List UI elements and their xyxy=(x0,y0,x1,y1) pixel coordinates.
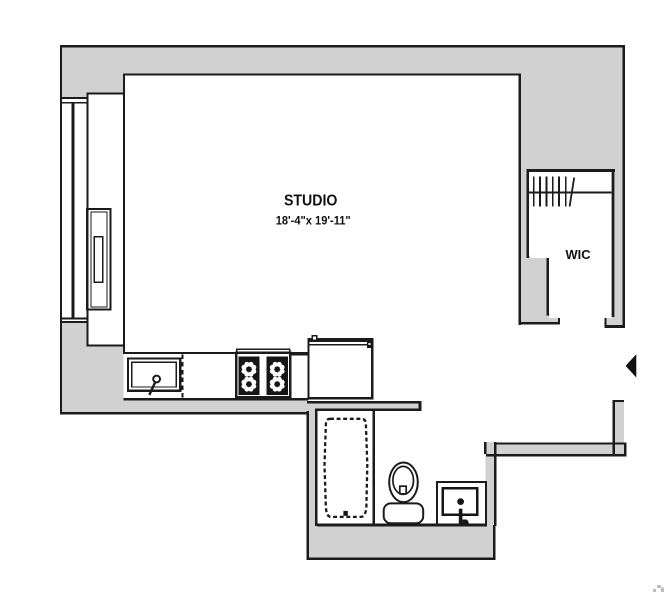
svg-text:18'-4"x 19'-11": 18'-4"x 19'-11" xyxy=(276,214,351,227)
svg-text:WIC: WIC xyxy=(566,247,592,262)
svg-text:STUDIO: STUDIO xyxy=(284,192,338,209)
